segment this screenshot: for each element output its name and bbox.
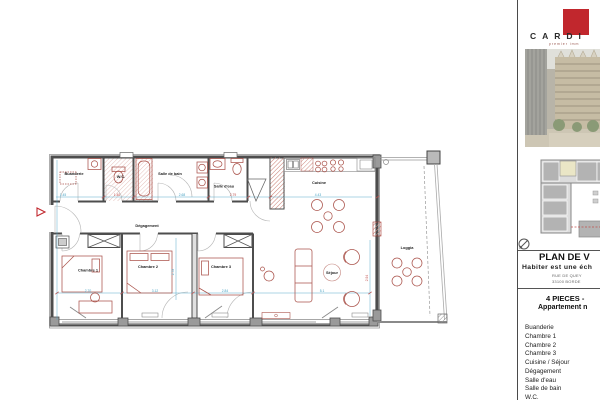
room-label-salle-de-bain: Salle de bain <box>158 171 182 176</box>
bed-icon <box>62 256 102 292</box>
bed-icon <box>127 251 172 293</box>
room-label-wc: W.C. <box>117 174 125 179</box>
closet-icon <box>224 235 252 248</box>
room-label-buanderie: Buanderie <box>64 171 84 176</box>
brand-name: CARDI <box>530 31 587 41</box>
room-label-chambre1: Chambre 1 <box>78 268 99 273</box>
dining-table-icon <box>312 200 345 233</box>
dimension-texts: 1.45 1.40 2.68 2.79 4.43 2.70 3.12 2.84 … <box>60 193 369 293</box>
dimension-ticks <box>55 196 379 294</box>
shower-icon <box>248 179 267 201</box>
bottom-windows <box>50 306 378 326</box>
dim-ch3: 2.84 <box>222 289 229 293</box>
washer-icon <box>88 159 101 170</box>
dim-sdb: 2.68 <box>179 193 186 197</box>
patio-table-icon <box>392 258 422 286</box>
dim-ch1: 2.70 <box>85 289 92 293</box>
room-label-degagement: Dégagement <box>135 223 159 228</box>
desk-icon <box>79 293 112 313</box>
room-label-cuisine: Cuisine <box>312 180 327 185</box>
room-label-salle-deau: Salle d'eau <box>214 184 235 189</box>
room-list-item: Chambre 2 <box>525 342 569 351</box>
tv-unit-icon <box>262 313 290 319</box>
armchair-icon <box>344 250 360 265</box>
title-block-panel: CARDI premier imm <box>517 0 600 400</box>
dim-sde: 2.79 <box>230 193 237 197</box>
room-list-item: Dégagement <box>525 368 569 377</box>
dim-ch2: 3.12 <box>152 289 159 293</box>
address-line2: 33100 BORDE <box>552 279 581 284</box>
floor-plan-sheet: Buanderie W.C. Salle de bain Salle d'eau… <box>0 0 600 400</box>
loggia-boundary <box>377 151 447 323</box>
sheet-subtitle: Habiter est une éch <box>522 264 592 271</box>
dim-ch2-h: 2.78 <box>171 269 175 276</box>
room-label-chambre2: Chambre 2 <box>138 264 159 269</box>
toilet-icon <box>231 159 243 175</box>
divider <box>518 250 600 251</box>
brand-tagline: premier imm <box>549 42 579 46</box>
highlighted-unit <box>560 161 576 176</box>
entry-arrow-icon <box>37 208 45 216</box>
room-label-sejour: Séjour <box>326 270 339 275</box>
dim-right-h: 2.94 <box>365 275 369 282</box>
sofa-icon <box>295 249 312 302</box>
apartment-number: Appartement n <box>538 304 587 311</box>
room-list-item: Cuisine / Séjour <box>525 359 569 368</box>
room-list-item: Chambre 3 <box>525 350 569 359</box>
room-list-item: Buanderie <box>525 324 569 333</box>
sink-icon <box>197 162 208 188</box>
room-list-item: Salle d'eau <box>525 377 569 386</box>
dim-sejour: 5.1 <box>320 289 325 293</box>
kitchen-counter <box>284 158 375 172</box>
dim-wc: 1.40 <box>114 193 121 197</box>
hob-icon <box>316 160 344 172</box>
sheet-title: PLAN DE V <box>539 252 590 263</box>
door-swings <box>55 175 270 318</box>
room-list-item: Salle de bain <box>525 385 569 394</box>
room-label-loggia: Loggia <box>401 245 415 250</box>
interior-walls <box>52 157 284 318</box>
room-list-item: W.C. <box>525 394 569 403</box>
armchair-icon <box>344 292 360 307</box>
divider <box>518 288 600 289</box>
closet-icon <box>88 235 120 248</box>
side-table-icon <box>261 267 275 281</box>
room-list-item: Chambre 1 <box>525 333 569 342</box>
building-photo <box>525 49 600 147</box>
apartment-type: 4 PIECES - <box>546 294 584 303</box>
address-line1: RUE DE QUEY <box>552 273 582 278</box>
room-label-chambre3: Chambre 3 <box>211 264 232 269</box>
dim-cuisine: 4.43 <box>315 193 322 197</box>
room-list: Buanderie Chambre 1 Chambre 2 Chambre 3 … <box>525 324 569 403</box>
outer-walls <box>49 155 380 329</box>
site-key-plan <box>519 153 600 245</box>
vanity-icon <box>210 159 225 170</box>
dim-buanderie: 1.45 <box>60 193 67 197</box>
